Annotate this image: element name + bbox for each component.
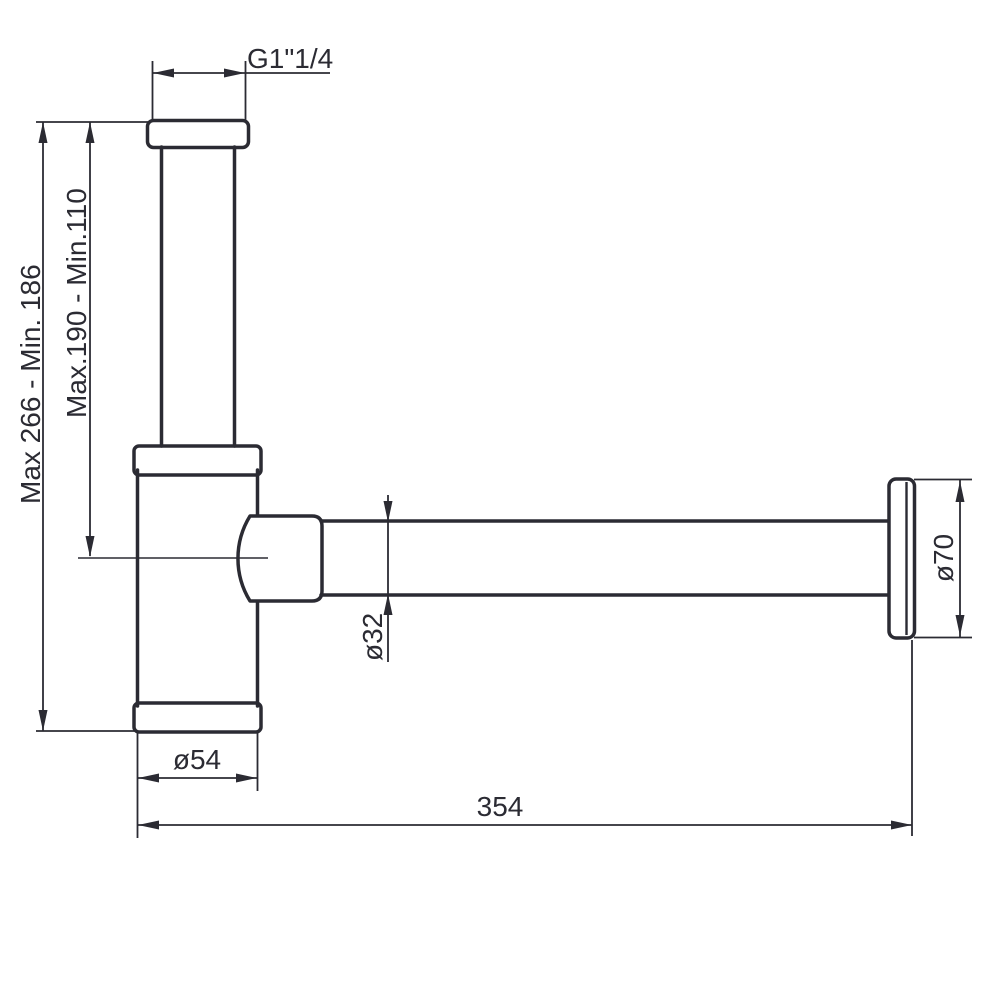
trap-body-bottom-cap <box>134 703 261 732</box>
pipe-diameter-label: ø32 <box>357 613 388 661</box>
flange-diameter-label: ø70 <box>928 534 959 582</box>
bottle-trap-technical-drawing: G1"1/4 Max 266 - Min. 186 Max.190 - Min.… <box>0 0 1000 1000</box>
thread-size-label: G1"1/4 <box>247 43 333 74</box>
length-dimension <box>138 640 913 836</box>
wall-flange <box>889 479 915 638</box>
overall-height-label: Max 266 - Min. 186 <box>15 264 46 504</box>
trap-body-top-cap <box>134 446 261 475</box>
top-flange <box>148 121 249 148</box>
inlet-height-label: Max.190 - Min.110 <box>61 188 92 418</box>
trap-body <box>138 470 258 706</box>
waste-pipe <box>321 521 889 595</box>
overall-height-dimension <box>36 122 148 731</box>
tailpiece-tube <box>162 147 235 446</box>
technical-drawing-page: G1"1/4 Max 266 - Min. 186 Max.190 - Min.… <box>0 0 1000 1000</box>
length-label: 354 <box>477 791 524 822</box>
body-diameter-label: ø54 <box>173 744 221 775</box>
